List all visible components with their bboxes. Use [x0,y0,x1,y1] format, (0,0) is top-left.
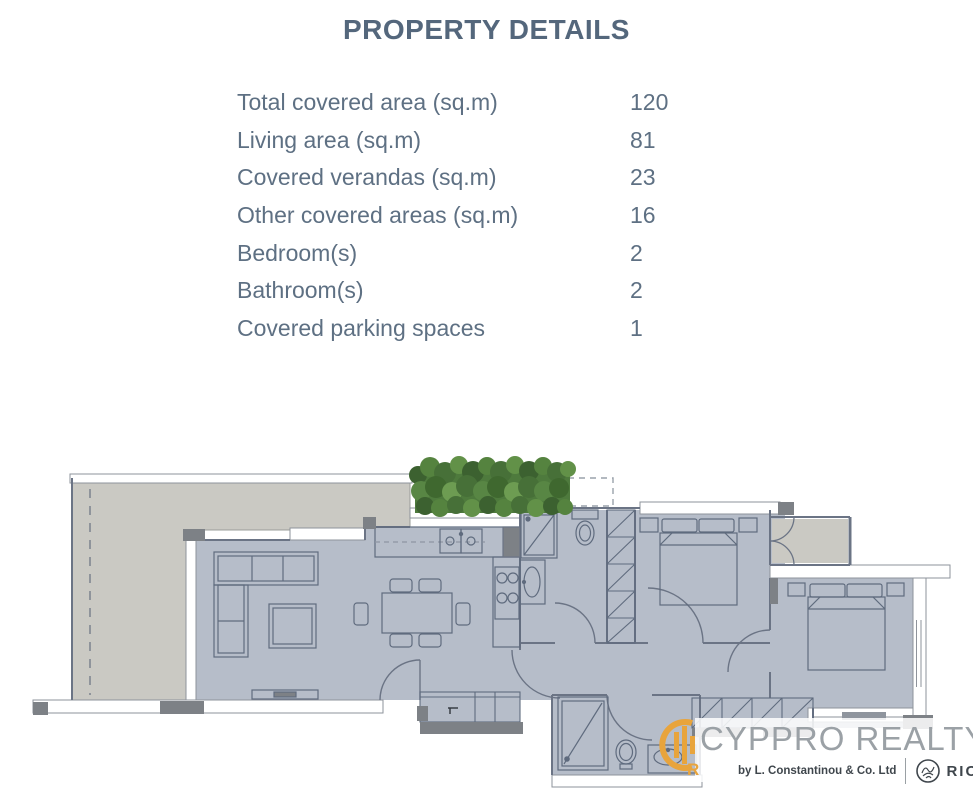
detail-row: Bathroom(s) 2 [237,272,697,310]
hedge [409,456,576,517]
detail-value: 23 [630,164,697,191]
detail-row: Bedroom(s) 2 [237,234,697,272]
detail-row: Other covered areas (sq.m) 16 [237,197,697,235]
detail-value: 16 [630,202,697,229]
divider [905,758,906,784]
detail-label: Total covered area (sq.m) [237,89,630,116]
property-details-page: { "header": { "title": "PROPERTY DETAILS… [0,0,973,804]
byline: by L. Constantinou & Co. Ltd [738,765,896,777]
page-title: PROPERTY DETAILS [0,14,973,46]
balcony [770,517,848,565]
fridge [503,527,520,557]
detail-label: Covered parking spaces [237,315,630,342]
rics-lion-icon [915,758,941,784]
detail-label: Other covered areas (sq.m) [237,202,630,229]
property-details-list: Total covered area (sq.m) 120 Living are… [237,84,697,347]
cyppro-monogram-icon: R [652,712,704,778]
cyppro-logo: R CYPPRO REALTY by L. Constantinou & Co.… [650,708,973,788]
logo-subline: by L. Constantinou & Co. Ltd RICS [738,758,973,784]
detail-row: Living area (sq.m) 81 [237,122,697,160]
detail-label: Bedroom(s) [237,240,630,267]
detail-label: Living area (sq.m) [237,127,630,154]
detail-value: 2 [630,277,697,304]
detail-label: Covered verandas (sq.m) [237,164,630,191]
brand-name: CYPPRO REALTY [700,720,973,758]
rics-label: RICS [946,763,973,780]
detail-value: 2 [630,240,697,267]
detail-value: 81 [630,127,697,154]
detail-row: Covered verandas (sq.m) 23 [237,159,697,197]
svg-text:R: R [687,760,699,778]
detail-value: 1 [630,315,697,342]
detail-row: Total covered area (sq.m) 120 [237,84,697,122]
detail-value: 120 [630,89,697,116]
detail-row: Covered parking spaces 1 [237,310,697,348]
pergola-dashed-outline [568,478,613,506]
detail-label: Bathroom(s) [237,277,630,304]
